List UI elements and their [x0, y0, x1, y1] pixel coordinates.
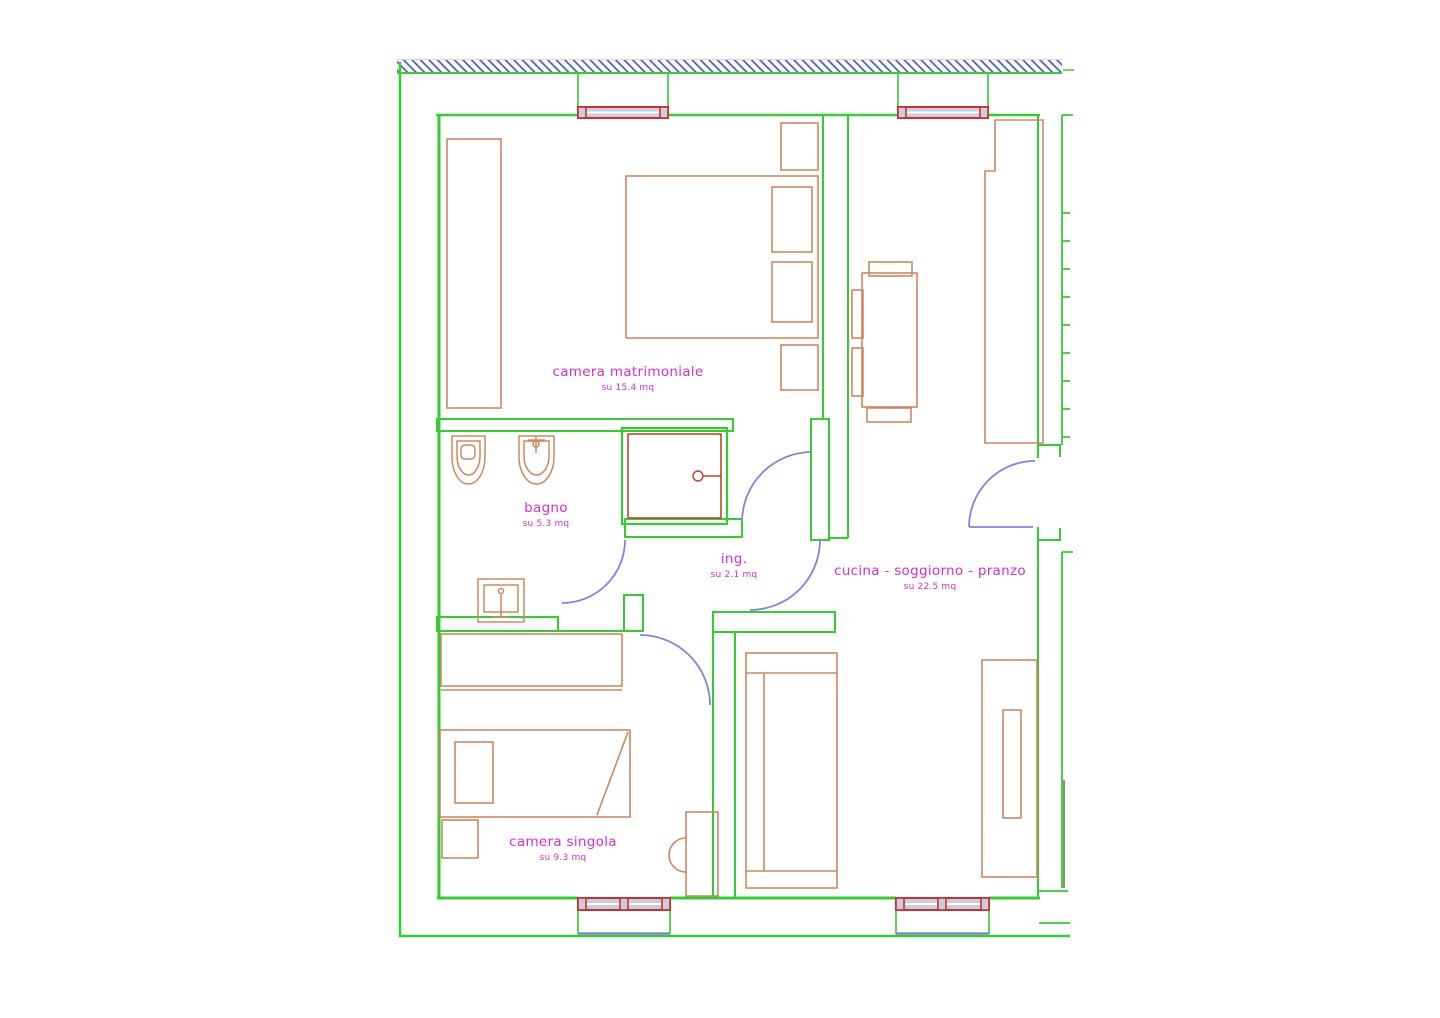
window-north-2 [898, 107, 988, 118]
floor-plan-drawing [0, 0, 1440, 1018]
toilet [452, 436, 485, 484]
nightstand-1 [781, 123, 818, 170]
room-label-ingresso: ing. su 2.1 mq [711, 553, 758, 580]
sideboard [982, 660, 1037, 877]
door-bagno [562, 540, 625, 603]
wardrobe [447, 139, 501, 408]
door-camera-singola [640, 635, 710, 705]
window-south-2 [896, 898, 989, 910]
furniture-cucina-soggiorno [746, 120, 1043, 888]
pillow-1 [772, 187, 812, 252]
room-name: ing. [711, 553, 758, 567]
double-bed [626, 176, 818, 338]
room-area: su 2.1 mq [711, 571, 758, 580]
single-bed [440, 730, 630, 817]
sink [478, 579, 524, 622]
door-camera-matrimoniale [742, 452, 812, 522]
stairwell-edge [1039, 115, 1073, 923]
room-name: bagno [523, 502, 570, 516]
room-label-cucina-soggiorno-pranzo: cucina - soggiorno - pranzo su 22.5 mq [834, 565, 1026, 592]
room-area: su 5.3 mq [523, 520, 570, 529]
kitchen-counter [985, 120, 1043, 443]
hatched-exterior-wall [397, 60, 1074, 74]
corner-cabinet [669, 812, 718, 896]
room-area: su 15.4 mq [552, 384, 703, 393]
dining-table-set [852, 262, 917, 422]
room-name: cucina - soggiorno - pranzo [834, 565, 1026, 579]
room-label-camera-matrimoniale: camera matrimoniale su 15.4 mq [552, 366, 703, 393]
windows [578, 107, 989, 910]
door-cucina [750, 540, 820, 610]
room-area: su 9.3 mq [509, 854, 617, 863]
bidet [519, 436, 554, 484]
desk [441, 634, 622, 690]
door-entrance [969, 461, 1035, 527]
room-area: su 22.5 mq [834, 583, 1026, 592]
floor-plan-canvas: camera matrimoniale su 15.4 mq bagno su … [0, 0, 1440, 1018]
window-north-1 [578, 107, 668, 118]
window-south-1 [578, 898, 670, 910]
nightstand [442, 820, 478, 858]
shower [622, 428, 727, 524]
room-name: camera matrimoniale [552, 366, 703, 380]
room-label-bagno: bagno su 5.3 mq [523, 502, 570, 529]
sofa [746, 653, 837, 888]
fixtures-bagno [452, 436, 554, 622]
room-name: camera singola [509, 836, 617, 850]
nightstand-2 [781, 345, 818, 390]
pillow-2 [772, 262, 812, 322]
room-label-camera-singola: camera singola su 9.3 mq [509, 836, 617, 863]
